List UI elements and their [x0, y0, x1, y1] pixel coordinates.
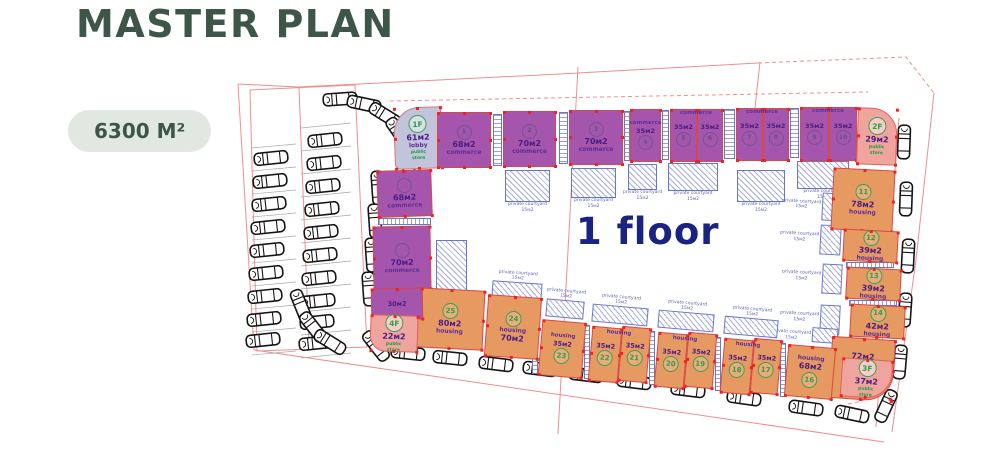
corner-marker [653, 384, 656, 387]
corner-marker [554, 165, 557, 168]
unit-group-label: commerce [812, 108, 844, 114]
corner-marker [503, 111, 506, 114]
private-courtyard-label: private courtyard 15м2 [782, 269, 822, 282]
unit-c7: 35м27 [736, 108, 763, 161]
car-icon [254, 150, 289, 165]
corner-marker [400, 225, 403, 228]
corner-marker [437, 112, 440, 115]
stairs-strip [662, 110, 669, 160]
unit-c9: 35м29 [800, 107, 829, 161]
unit-h12: 1239м2housing [842, 229, 899, 264]
corner-marker [438, 106, 441, 109]
unit-label: 35м2 [662, 348, 681, 356]
corner-marker [421, 317, 424, 320]
corner-marker [863, 168, 866, 171]
corner-marker [415, 350, 418, 353]
corner-marker [420, 287, 423, 290]
unit-label: 35м2 [596, 342, 615, 350]
corner-marker [715, 334, 718, 337]
unit-label: 35м2 [553, 340, 572, 348]
corner-marker [509, 355, 512, 358]
corner-marker [833, 347, 836, 350]
private-courtyard-label: private courtyard 15м2 [546, 287, 586, 302]
road-line [298, 63, 758, 87]
unit-number-circle: 22 [596, 350, 613, 367]
parking-stall-line [252, 144, 296, 148]
unit-number-circle: 18 [728, 362, 745, 379]
parking-stall-line [252, 328, 296, 332]
corner-marker [415, 106, 418, 109]
car-icon [308, 132, 343, 147]
unit-label: 22м2 [382, 333, 406, 342]
unit-number-circle: 8 [769, 131, 784, 146]
unit-number-circle: 10 [836, 130, 851, 145]
private-courtyard: private courtyard 15м2 [628, 164, 657, 190]
stairs-strip [493, 114, 502, 166]
unit-number-circle: 2 [522, 124, 537, 139]
private-courtyard-label: private courtyard 15м2 [780, 230, 820, 243]
corner-marker [513, 295, 516, 298]
corner-marker [503, 138, 506, 141]
corner-marker [584, 322, 587, 325]
corner-marker [903, 306, 906, 309]
corner-marker [370, 288, 373, 291]
corner-marker [429, 169, 432, 172]
corner-marker [450, 288, 453, 291]
corner-marker [724, 337, 727, 340]
unit-c-left-70: 70м2commerce [372, 225, 431, 290]
unit-c2: 270м2commerce [503, 111, 556, 167]
corner-marker [485, 324, 488, 327]
corner-marker [670, 160, 673, 163]
corner-marker [621, 136, 624, 139]
corner-marker [846, 266, 849, 269]
corner-marker [592, 325, 595, 328]
unit-number-circle [396, 178, 412, 194]
private-courtyard-label: private courtyard 15м2 [667, 299, 707, 314]
unit-label: 68м2 [452, 141, 475, 149]
corner-marker [895, 261, 898, 264]
corner-marker [402, 169, 405, 172]
parking-stall-line [252, 236, 296, 240]
corner-marker [736, 108, 739, 111]
corner-marker [649, 328, 652, 331]
corner-marker [710, 386, 713, 389]
corner-marker [617, 354, 620, 357]
unit-number-circle: 23 [553, 347, 570, 364]
unit-c10: 35м210 [829, 107, 857, 161]
unit-label: 70м2 [390, 258, 413, 266]
unit-c4: commerce35м24 [630, 109, 661, 162]
corner-marker [481, 319, 484, 322]
corner-marker [621, 163, 624, 166]
corner-marker [898, 299, 901, 302]
corner-marker [569, 163, 572, 166]
unit-label: commerce [447, 150, 482, 156]
car-icon [307, 155, 342, 170]
corner-marker [866, 358, 869, 361]
car-icon [304, 224, 339, 239]
private-courtyard-label: private courtyard 15м2 [498, 269, 538, 283]
unit-label: lobby [409, 143, 428, 150]
unit-label: 35м2 [805, 123, 824, 130]
corner-marker [659, 109, 662, 112]
unit-label: 70м2 [584, 138, 607, 146]
private-courtyard-label: private courtyard 15м2 [741, 202, 780, 213]
corner-marker [595, 110, 598, 113]
corner-marker [447, 346, 450, 349]
car-icon [433, 350, 468, 365]
unit-label: housing [436, 328, 463, 335]
unit-label: 35м2 [728, 354, 747, 362]
unit-label: 35м2 [757, 354, 776, 362]
master-plan-slide: MASTER PLAN 6300 M² 1 floor private cour… [0, 0, 1000, 457]
corner-marker [891, 200, 894, 203]
car-icon [251, 219, 286, 234]
corner-marker [862, 337, 865, 340]
corner-marker [888, 397, 891, 400]
corner-marker [780, 340, 783, 343]
car-icon [248, 288, 283, 303]
unit-store-4f: 4F22м2public store [369, 314, 418, 353]
corner-marker [437, 139, 440, 142]
unit-number-circle: 2F [868, 117, 887, 136]
unit-h13: 1339м2housing [845, 267, 902, 302]
corner-marker [895, 108, 898, 111]
car-icon [249, 265, 284, 280]
unit-number-circle: 3F [858, 359, 877, 378]
corner-marker [829, 159, 832, 162]
corner-marker [839, 394, 842, 397]
corner-marker [831, 197, 834, 200]
corner-marker [655, 358, 658, 361]
corner-marker [430, 214, 433, 217]
corner-marker [870, 229, 873, 232]
corner-marker [899, 269, 902, 272]
corner-marker [630, 109, 633, 112]
stairs-strip [559, 112, 568, 164]
unit-h25: 2580м2housing [414, 287, 485, 350]
corner-marker [747, 392, 750, 395]
unit-number-circle: 21 [626, 350, 643, 367]
corner-marker [587, 378, 590, 381]
corner-marker [712, 360, 715, 363]
corner-marker [488, 294, 491, 297]
road-line [238, 84, 298, 87]
car-icon [834, 405, 869, 424]
unit-number-circle: 19 [692, 356, 709, 373]
private-courtyard: private courtyard 15м2 [737, 170, 785, 202]
corner-marker [783, 393, 786, 396]
corner-marker [749, 366, 752, 369]
corner-marker [537, 372, 540, 375]
private-courtyard-label: private courtyard 15м2 [623, 190, 662, 201]
corner-marker [683, 360, 686, 363]
corner-marker [579, 376, 582, 379]
corner-marker [416, 315, 419, 318]
unit-c1: 168м2commerce [437, 112, 491, 168]
unit-c6: 35м26 [697, 109, 723, 162]
unit-h23: housing35м223 [538, 319, 587, 379]
unit-group-label: commerce [746, 109, 778, 115]
corner-marker [377, 215, 380, 218]
private-courtyard-label: private courtyard 15м2 [782, 198, 822, 211]
corner-marker [372, 226, 375, 229]
road-line [390, 92, 868, 101]
private-courtyard-label: private courtyard 15м2 [673, 191, 712, 202]
unit-number-circle: 1F [408, 115, 427, 134]
car-icon [479, 356, 514, 372]
corner-marker [428, 256, 431, 259]
unit-c-left-68: 68м2commerce [376, 169, 433, 218]
unit-label: commerce [385, 267, 420, 274]
corner-marker [845, 296, 848, 299]
corner-marker [830, 227, 833, 230]
corner-marker [893, 170, 896, 173]
corner-marker [670, 109, 673, 112]
private-courtyard: private courtyard 15м2 [571, 168, 616, 198]
corner-marker [893, 340, 896, 343]
corner-marker [569, 136, 572, 139]
corner-marker [595, 163, 598, 166]
parking-stall-line [301, 123, 351, 128]
parking-stall-line [252, 167, 296, 171]
unit-number-circle: 3 [589, 122, 604, 137]
corner-marker [537, 327, 540, 330]
corner-marker [589, 352, 592, 355]
private-courtyard-label: private courtyard 15м2 [732, 305, 772, 320]
corner-marker [542, 319, 545, 322]
car-icon [252, 196, 287, 211]
unit-number-circle: 16 [801, 371, 818, 388]
corner-marker [697, 160, 700, 163]
corner-marker [843, 228, 846, 231]
unit-h11: 1178м2housing [830, 167, 895, 232]
unit-label: 35м2 [740, 123, 759, 130]
car-icon [305, 201, 340, 216]
unit-label: housing [849, 209, 876, 216]
corner-marker [721, 364, 724, 367]
private-courtyard: private courtyard 15м2 [821, 263, 843, 294]
car-icon [250, 242, 285, 257]
car-icon [901, 239, 915, 273]
site-plan: 1 floor private courtyard 15м2private co… [0, 0, 1000, 457]
unit-label: 35м2 [692, 348, 711, 356]
corner-marker [800, 159, 803, 162]
corner-marker [858, 397, 861, 400]
corner-marker [868, 259, 871, 262]
unit-number-circle: 6 [703, 132, 718, 147]
corner-marker [856, 134, 859, 137]
unit-number-circle: 14 [870, 305, 887, 322]
corner-marker [873, 267, 876, 270]
corner-marker [800, 107, 803, 110]
corner-marker [644, 380, 647, 383]
corner-marker [630, 160, 633, 163]
unit-label: commerce [579, 147, 614, 153]
unit-number-circle: 7 [742, 131, 757, 146]
corner-marker [787, 108, 790, 111]
corner-marker [893, 163, 896, 166]
stairs-strip [790, 108, 799, 158]
corner-marker [787, 159, 790, 162]
unit-label: 35м2 [701, 124, 720, 131]
parking-stall-line [252, 351, 296, 355]
parking-stall-line [252, 213, 296, 217]
corner-marker [811, 345, 814, 348]
corner-marker [539, 346, 542, 349]
private-courtyard-label: private courtyard 15м2 [574, 198, 613, 209]
corner-marker [721, 109, 724, 112]
corner-marker [829, 397, 832, 400]
corner-marker [372, 257, 375, 260]
car-icon [247, 311, 282, 326]
corner-marker [788, 343, 791, 346]
corner-marker [369, 349, 372, 352]
unit-h24: 24housing70м2 [484, 294, 542, 360]
corner-marker [842, 357, 845, 360]
corner-marker [392, 349, 395, 352]
floor-label: 1 floor [576, 210, 720, 253]
corner-marker [833, 167, 836, 170]
unit-label: public store [404, 150, 432, 161]
corner-marker [646, 354, 649, 357]
corner-marker [775, 392, 778, 395]
corner-marker [480, 348, 483, 351]
unit-label: 35м2 [674, 124, 693, 131]
corner-marker [370, 314, 373, 317]
corner-marker [777, 366, 780, 369]
unit-label: commerce [630, 121, 662, 127]
corner-marker [658, 331, 661, 334]
corner-marker [489, 112, 492, 115]
unit-label: 29м2 [865, 136, 889, 145]
unit-c3: 370м2commerce [569, 110, 623, 165]
car-icon [246, 332, 281, 347]
corner-marker [554, 138, 557, 141]
car-icon [899, 182, 912, 216]
corner-marker [842, 258, 845, 261]
corner-marker [554, 111, 557, 114]
corner-marker [428, 225, 431, 228]
corner-marker [376, 170, 379, 173]
corner-marker [721, 160, 724, 163]
unit-c8: 35м28 [763, 108, 789, 161]
corner-marker [719, 390, 722, 393]
corner-marker [535, 357, 538, 360]
unit-c5: 35м25 [670, 109, 697, 162]
private-courtyard: private courtyard 15м2 [545, 298, 584, 319]
corner-marker [503, 165, 506, 168]
unit-label: 30м2 [387, 301, 406, 308]
corner-marker [806, 395, 809, 398]
unit-label: 35м2 [636, 128, 655, 135]
unit-h14: 1442м2housing [849, 304, 906, 340]
private-courtyard: private courtyard 15м2 [668, 163, 718, 191]
corner-marker [569, 110, 572, 113]
parking-stall-line [252, 259, 296, 263]
stairs-strip [378, 218, 431, 225]
corner-marker [902, 337, 905, 340]
corner-marker [463, 166, 466, 169]
corner-marker [832, 335, 835, 338]
car-icon [302, 270, 337, 285]
corner-marker [615, 380, 618, 383]
road-line [758, 57, 934, 93]
unit-number-circle: 11 [855, 184, 872, 201]
private-courtyard-label: private courtyard 15м2 [508, 202, 547, 213]
corner-marker [681, 386, 684, 389]
corner-marker [877, 304, 880, 307]
corner-marker [659, 160, 662, 163]
corner-marker [392, 107, 395, 110]
unit-number-circle: 1 [457, 125, 472, 140]
private-courtyard-label: private courtyard 15м2 [780, 310, 820, 323]
car-icon [789, 400, 824, 417]
corner-marker [539, 297, 542, 300]
parking-stall-line [301, 146, 351, 151]
stairs-strip [724, 109, 735, 159]
unit-label: 35м2 [767, 123, 786, 130]
corner-marker [393, 314, 396, 317]
corner-marker [489, 166, 492, 169]
corner-marker [850, 303, 853, 306]
corner-marker [871, 297, 874, 300]
corner-marker [581, 349, 584, 352]
corner-marker [463, 112, 466, 115]
unit-number-circle: 20 [662, 356, 679, 373]
corner-marker [896, 231, 899, 234]
unit-label: commerce [387, 202, 422, 209]
unit-number-circle [394, 242, 409, 257]
corner-marker [621, 110, 624, 113]
unit-label: 68м2 [799, 362, 823, 372]
parking-stall-line [301, 353, 351, 358]
corner-marker [528, 111, 531, 114]
corner-marker [891, 360, 894, 363]
unit-number-circle: 4 [638, 135, 653, 150]
unit-number-circle: 25 [442, 303, 459, 320]
unit-number-circle: 17 [757, 362, 774, 379]
corner-marker [864, 395, 867, 398]
corner-marker [437, 166, 440, 169]
unit-group-label: commerce [680, 110, 712, 116]
unit-number-circle: 5 [676, 132, 691, 147]
corner-marker [763, 159, 766, 162]
parking-stall-line [252, 282, 296, 286]
corner-marker [856, 162, 859, 165]
corner-marker [483, 290, 486, 293]
corner-marker [404, 214, 407, 217]
corner-marker [489, 139, 492, 142]
corner-marker [528, 165, 531, 168]
unit-label: 70м2 [518, 140, 541, 148]
car-icon [253, 173, 288, 188]
private-courtyard-label: private courtyard 15м2 [601, 293, 641, 308]
corner-marker [857, 107, 860, 110]
corner-marker [395, 287, 398, 290]
unit-label: 70м2 [500, 334, 524, 344]
unit-label: 35м2 [834, 123, 853, 130]
road-line [238, 84, 254, 350]
corner-marker [483, 354, 486, 357]
private-courtyard: private courtyard 15м2 [505, 170, 550, 202]
unit-label: commerce [512, 149, 547, 155]
unit-number-circle: 24 [505, 310, 522, 327]
unit-h16: housing68м216 [784, 344, 836, 400]
parking-stall-line [252, 190, 296, 194]
car-icon [303, 247, 338, 262]
